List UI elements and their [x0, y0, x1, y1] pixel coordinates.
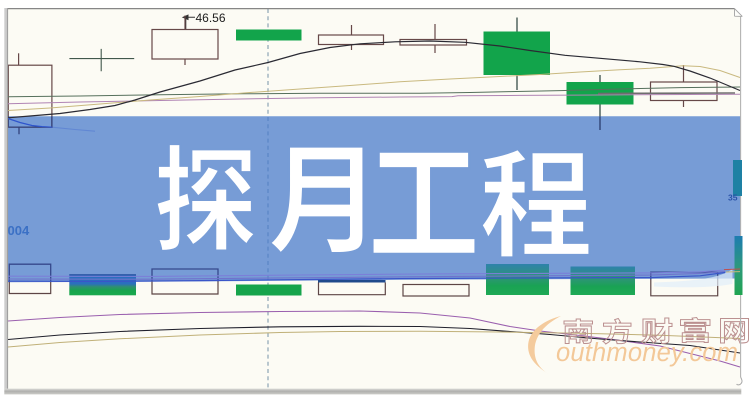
- svg-text:35: 35: [728, 193, 738, 203]
- svg-text:outhmoney.com: outhmoney.com: [556, 339, 738, 367]
- svg-text:004: 004: [8, 223, 30, 238]
- svg-text:46.56: 46.56: [196, 11, 226, 25]
